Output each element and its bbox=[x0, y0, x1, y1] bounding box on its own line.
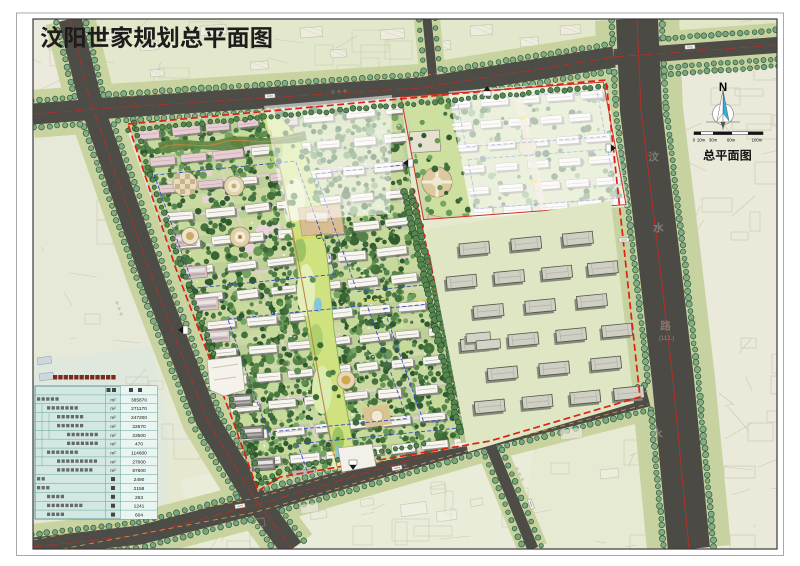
svg-text:114600: 114600 bbox=[131, 451, 147, 457]
svg-text:470: 470 bbox=[135, 442, 143, 448]
svg-text:271170: 271170 bbox=[131, 406, 147, 412]
svg-text:m²: m² bbox=[110, 459, 116, 464]
svg-text:30m: 30m bbox=[709, 138, 718, 143]
svg-text:23500: 23500 bbox=[132, 433, 146, 439]
svg-text:2490: 2490 bbox=[134, 477, 145, 483]
svg-text:385870: 385870 bbox=[131, 397, 147, 403]
svg-text:m²: m² bbox=[110, 424, 116, 429]
svg-text:m²: m² bbox=[110, 415, 116, 420]
svg-text:87600: 87600 bbox=[132, 468, 146, 474]
svg-text:247200: 247200 bbox=[131, 415, 147, 421]
svg-text:m²: m² bbox=[110, 433, 116, 438]
svg-text:(112.): (112.) bbox=[659, 336, 674, 342]
svg-text:N: N bbox=[719, 82, 727, 94]
svg-text:2158: 2158 bbox=[134, 486, 145, 492]
svg-text:m²: m² bbox=[110, 442, 116, 447]
svg-text:27000: 27000 bbox=[132, 459, 146, 465]
svg-text:263: 263 bbox=[135, 495, 143, 501]
svg-text:60m: 60m bbox=[727, 138, 736, 143]
svg-text:m²: m² bbox=[110, 468, 116, 473]
svg-text:m²: m² bbox=[110, 397, 116, 402]
svg-text:604: 604 bbox=[135, 513, 143, 519]
svg-text:22670: 22670 bbox=[132, 424, 146, 430]
svg-text:m²: m² bbox=[110, 451, 116, 456]
svg-text:10m: 10m bbox=[697, 138, 706, 143]
svg-text:1241: 1241 bbox=[134, 504, 145, 510]
svg-text:m²: m² bbox=[110, 406, 116, 411]
svg-text:100m: 100m bbox=[752, 138, 763, 143]
